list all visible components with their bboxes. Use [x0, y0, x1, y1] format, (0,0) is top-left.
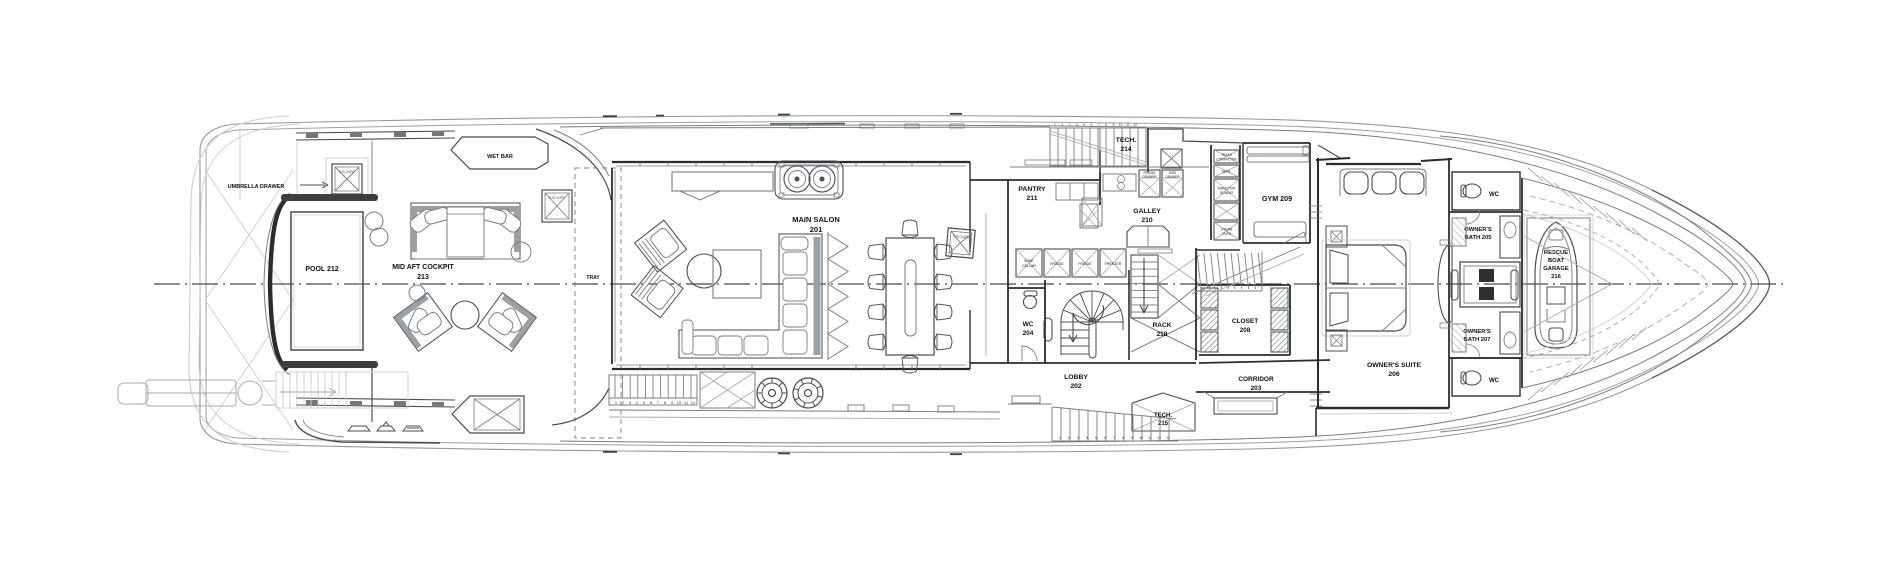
svg-text:STEAM: STEAM [1221, 228, 1232, 232]
svg-text:OVEN: OVEN [1222, 232, 1232, 236]
svg-text:WC: WC [1023, 321, 1034, 328]
svg-text:9: 9 [1112, 123, 1114, 127]
svg-text:11: 11 [1126, 123, 1130, 127]
svg-text:WC: WC [1489, 378, 1500, 384]
svg-text:201: 201 [810, 225, 823, 234]
svg-text:OWNER'S SUITE: OWNER'S SUITE [1367, 362, 1422, 369]
svg-text:WINE: WINE [1024, 259, 1034, 263]
svg-text:211: 211 [1027, 195, 1038, 202]
svg-text:11: 11 [1148, 436, 1152, 440]
svg-text:RACK: RACK [1153, 322, 1172, 329]
svg-text:LOBBY: LOBBY [1064, 374, 1088, 381]
svg-text:COMPACTOR: COMPACTOR [1216, 158, 1237, 162]
svg-text:GYM 209: GYM 209 [1262, 194, 1292, 203]
svg-text:213: 213 [417, 274, 429, 281]
svg-text:8: 8 [1105, 123, 1107, 127]
svg-text:WET BAR: WET BAR [487, 154, 513, 160]
svg-text:DOMINO: DOMINO [1220, 191, 1234, 195]
svg-text:FRIDGE: FRIDGE [1050, 262, 1064, 266]
svg-text:TRASH: TRASH [1221, 153, 1233, 157]
svg-text:TRAY: TRAY [586, 275, 600, 281]
svg-text:4: 4 [1076, 123, 1078, 127]
svg-text:206: 206 [1388, 371, 1400, 378]
svg-text:5: 5 [1095, 436, 1097, 440]
svg-text:202: 202 [1070, 383, 1082, 390]
svg-text:GARAGE: GARAGE [1543, 266, 1569, 272]
svg-text:TECH.: TECH. [1116, 137, 1137, 144]
svg-text:FRIDGE: FRIDGE [1078, 262, 1092, 266]
svg-text:5: 5 [1083, 123, 1085, 127]
svg-text:REFR.: REFR. [1222, 170, 1232, 174]
svg-text:BATH 207: BATH 207 [1464, 337, 1491, 343]
svg-text:7: 7 [1098, 123, 1100, 127]
svg-text:DRAWER: DRAWER [1142, 175, 1157, 179]
svg-text:POOL 212: POOL 212 [305, 266, 338, 273]
svg-text:6: 6 [1091, 123, 1093, 127]
svg-text:1: 1 [1054, 123, 1056, 127]
svg-text:203: 203 [1251, 385, 1262, 392]
svg-text:2: 2 [1068, 436, 1070, 440]
svg-text:2: 2 [1061, 123, 1063, 127]
svg-text:214: 214 [1120, 146, 1132, 153]
svg-text:12: 12 [1133, 123, 1137, 127]
svg-text:208: 208 [1240, 327, 1251, 334]
svg-text:OWNER'S: OWNER'S [1464, 227, 1492, 233]
svg-text:INDUCTION: INDUCTION [1218, 187, 1236, 191]
svg-text:UMBRELLA DRAWER: UMBRELLA DRAWER [228, 184, 285, 190]
svg-text:12: 12 [691, 400, 696, 405]
svg-text:1: 1 [1059, 436, 1061, 440]
svg-text:PANTRY: PANTRY [1018, 186, 1046, 193]
svg-text:BOAT: BOAT [1548, 258, 1564, 264]
svg-text:7: 7 [1113, 436, 1115, 440]
svg-text:10: 10 [677, 400, 682, 405]
svg-text:13: 13 [1166, 436, 1170, 440]
svg-text:BATH 205: BATH 205 [1465, 235, 1493, 241]
svg-text:8: 8 [1122, 436, 1124, 440]
svg-text:ESCAPE: ESCAPE [339, 169, 356, 174]
svg-text:10: 10 [1119, 123, 1123, 127]
svg-text:204: 204 [1023, 330, 1034, 337]
svg-text:CELLAR: CELLAR [1022, 264, 1036, 268]
svg-text:MAIN SALON: MAIN SALON [792, 215, 840, 224]
svg-text:WC: WC [1489, 192, 1500, 198]
svg-text:DRAWER: DRAWER [1165, 175, 1180, 179]
svg-text:216: 216 [1551, 274, 1561, 280]
svg-text:ESCAPE: ESCAPE [549, 195, 566, 200]
svg-text:MID AFT COCKPIT: MID AFT COCKPIT [392, 264, 454, 271]
svg-text:10: 10 [1139, 436, 1143, 440]
svg-text:4: 4 [1086, 436, 1088, 440]
svg-text:3: 3 [1069, 123, 1071, 127]
svg-text:6: 6 [1104, 436, 1106, 440]
svg-text:218: 218 [1157, 331, 1168, 338]
svg-text:CORRIDOR: CORRIDOR [1238, 376, 1274, 383]
svg-text:210: 210 [1141, 217, 1153, 224]
svg-text:GALLEY: GALLEY [1133, 208, 1161, 215]
svg-text:OWNER'S: OWNER'S [1463, 329, 1491, 335]
svg-text:12: 12 [1157, 436, 1161, 440]
svg-text:CLOSET: CLOSET [1232, 318, 1258, 325]
svg-text:9: 9 [1131, 436, 1133, 440]
svg-text:3: 3 [1077, 436, 1079, 440]
svg-text:FREEZER: FREEZER [1105, 262, 1122, 266]
